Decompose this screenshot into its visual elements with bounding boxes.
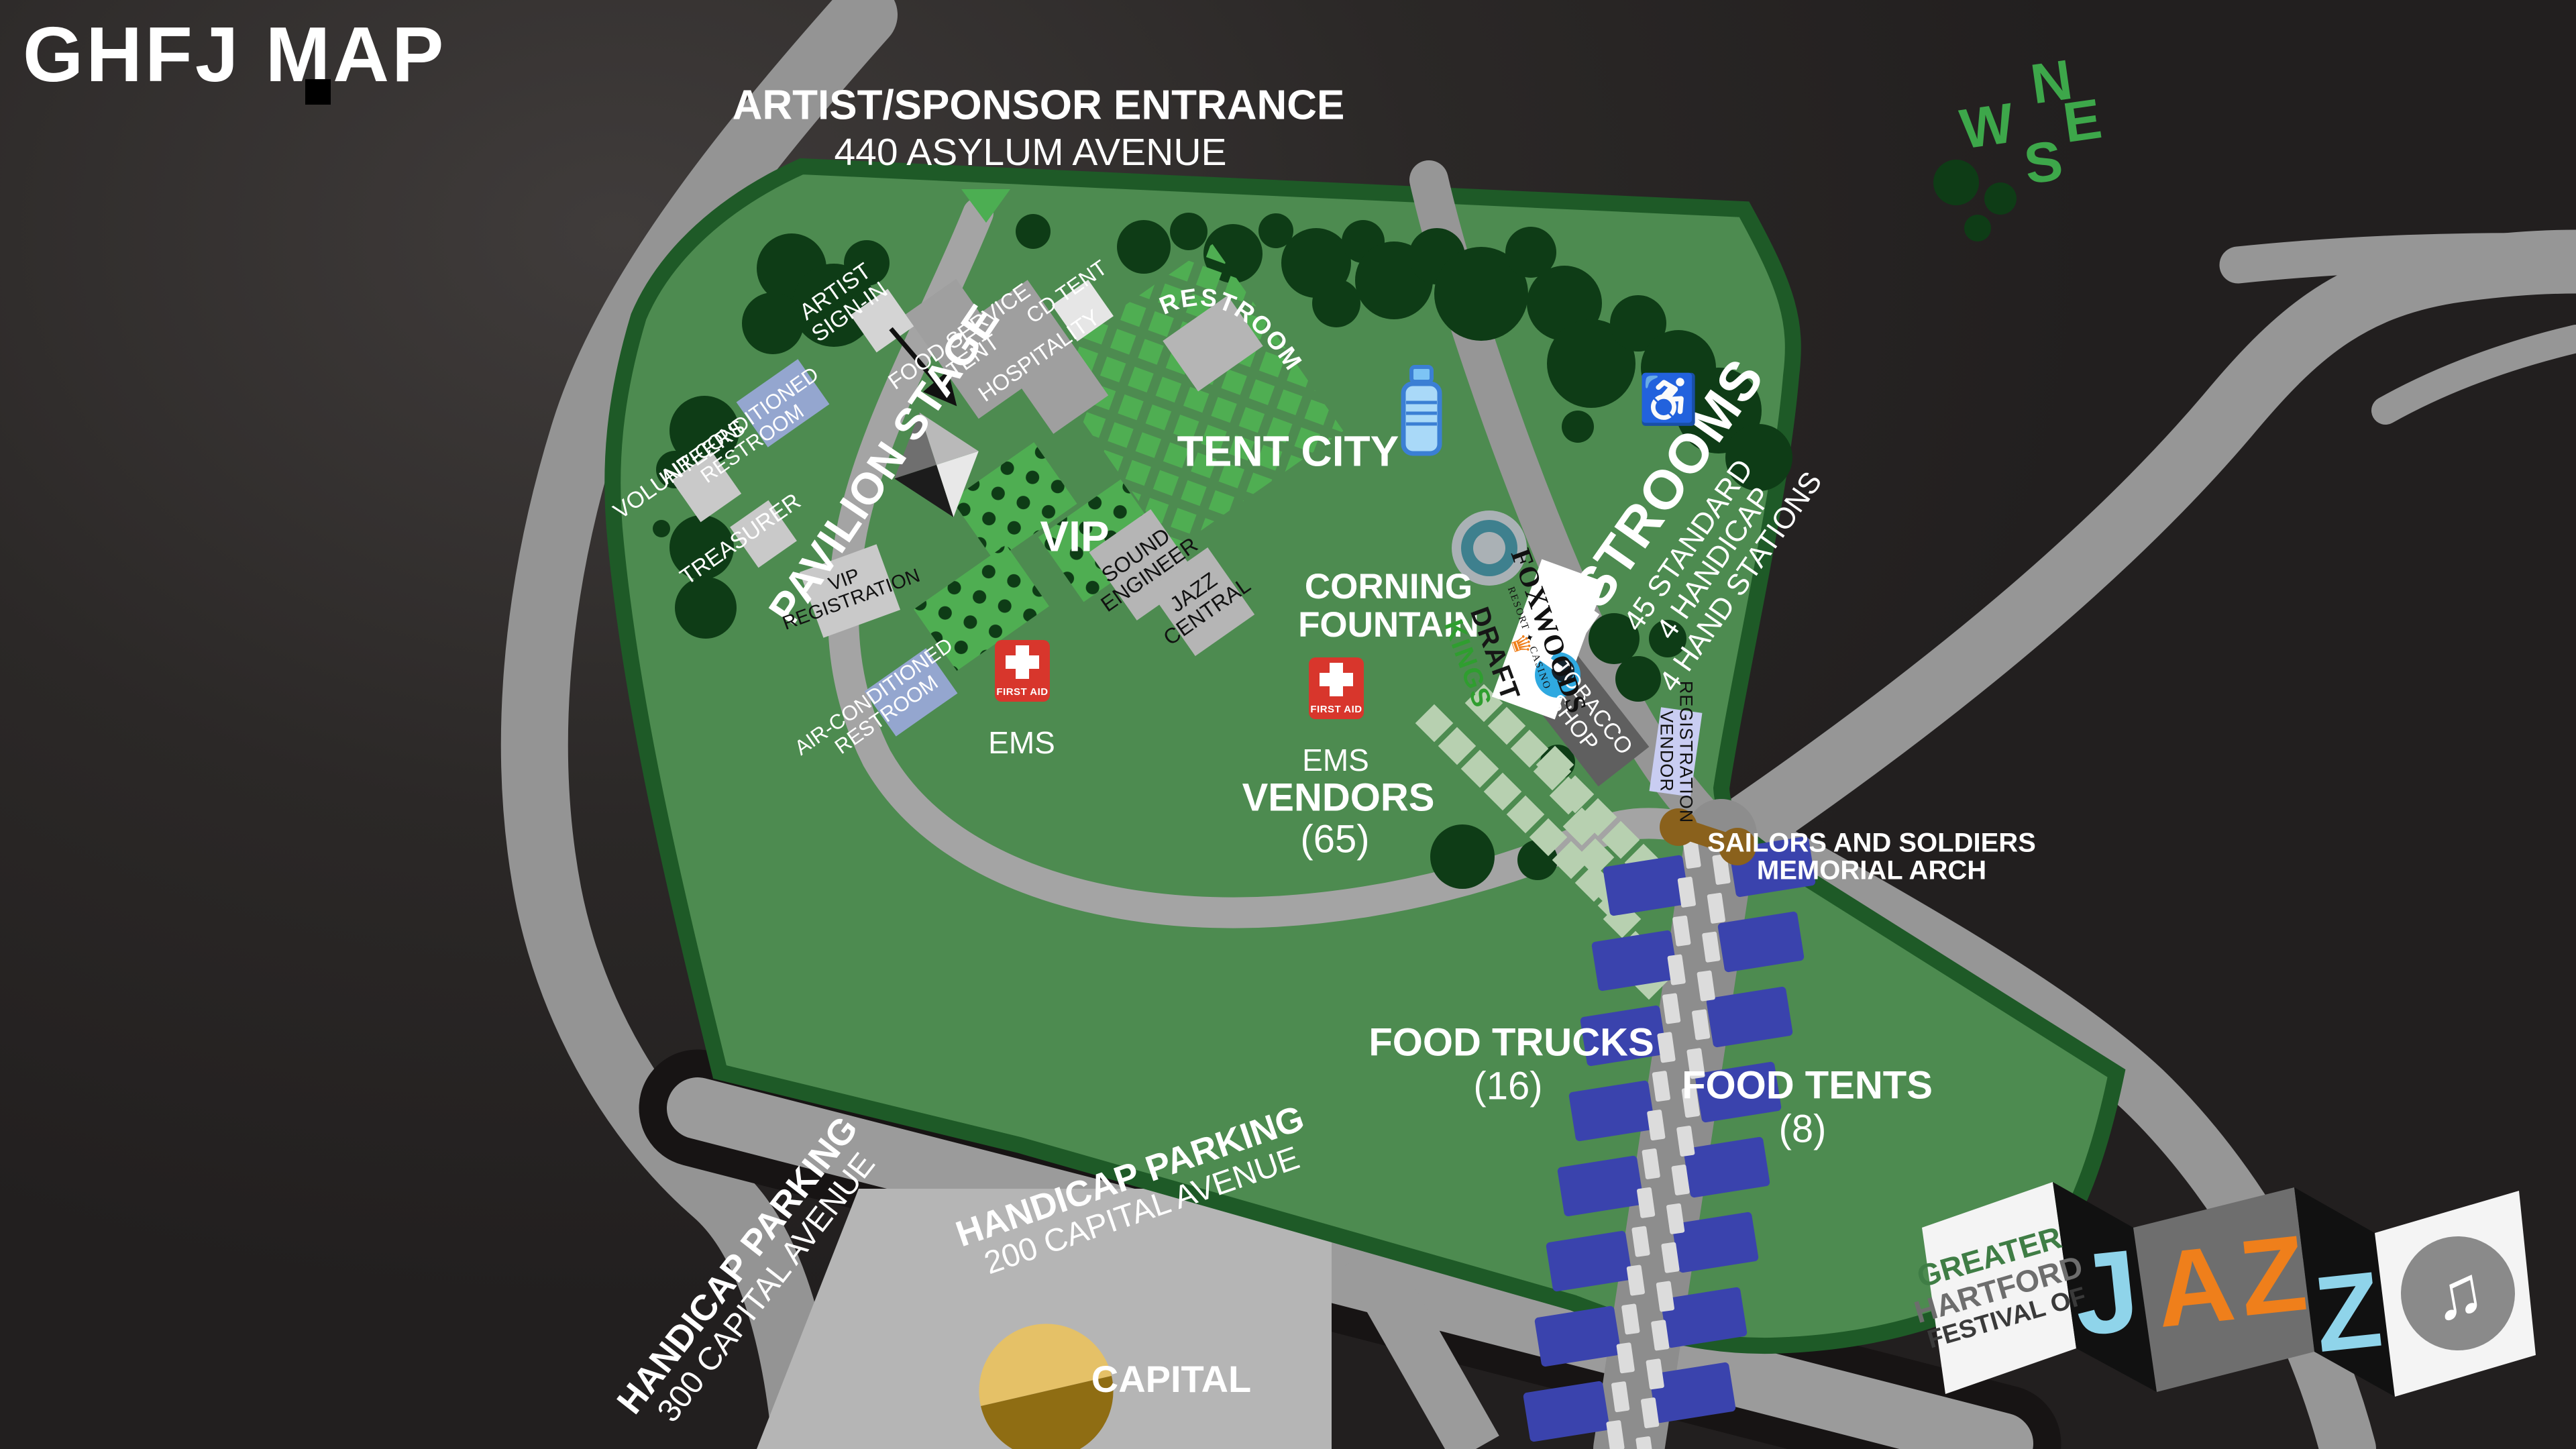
page-title: GHFJ MAP bbox=[23, 9, 446, 99]
tent-city-label: TENT CITY bbox=[1177, 428, 1399, 474]
vip-label: VIP bbox=[1040, 513, 1109, 559]
compass-east: E bbox=[2059, 88, 2105, 154]
compass-west: W bbox=[1956, 93, 2017, 160]
first-aid-station-2: FIRST AID bbox=[1309, 657, 1364, 719]
handicap-parking-200-label: HANDICAP PARKING 200 CAPITAL AVENUE bbox=[951, 1098, 1320, 1287]
ems-label-1: EMS bbox=[988, 727, 1055, 760]
black-marker-square bbox=[305, 79, 331, 105]
logo-wordmark: GREATER HARTFORD FESTIVAL OF bbox=[1902, 1218, 2094, 1356]
wheelchair-icon: ♿ bbox=[1638, 374, 1699, 427]
music-note-icon: ♫ bbox=[2392, 1228, 2524, 1360]
capital-label: CAPITAL bbox=[1091, 1359, 1252, 1399]
logo-letter-a: A bbox=[2151, 1225, 2240, 1348]
labels-layer: GHFJ MAP ARTIST/SPONSOR ENTRANCE 440 ASY… bbox=[0, 0, 2576, 1449]
vendor-registration-label-1: VENDOR bbox=[1656, 710, 1676, 792]
artist-sign-in-label: ARTISTSIGN-IN bbox=[793, 257, 892, 347]
memorial-arch-label-2: MEMORIAL ARCH bbox=[1757, 856, 1986, 885]
vendors-count: (65) bbox=[1300, 819, 1369, 861]
ac-restroom-2-label: AIR-CONDITIONEDRESTROOM bbox=[791, 634, 970, 778]
food-tents-count: (8) bbox=[1779, 1109, 1827, 1151]
entrance-label: ARTIST/SPONSOR ENTRANCE bbox=[733, 84, 1345, 129]
vendors-label: VENDORS bbox=[1242, 777, 1435, 820]
food-trucks-count: (16) bbox=[1473, 1066, 1542, 1108]
memorial-arch-label: SAILORS AND SOLDIERS bbox=[1707, 828, 2036, 857]
festival-map: RESTROOMS GHFJ MAP ARTIST/SPONSOR ENTRAN… bbox=[0, 0, 2576, 1449]
entrance-address: 440 ASYLUM AVENUE bbox=[834, 132, 1226, 174]
vendor-registration-label-2: REGISTRATION bbox=[1676, 681, 1695, 824]
ems-label-2: EMS bbox=[1302, 744, 1369, 777]
food-trucks-label: FOOD TRUCKS bbox=[1368, 1022, 1654, 1065]
first-aid-station-1: FIRST AID bbox=[995, 640, 1050, 702]
logo-letter-j: J bbox=[2068, 1228, 2145, 1359]
logo-letter-z2: Z bbox=[2309, 1251, 2386, 1373]
compass-south: S bbox=[2021, 129, 2066, 195]
handicap-parking-300-label: HANDICAP PARKING 300 CAPITAL AVENUE bbox=[610, 1110, 893, 1443]
ac-restroom-1-label: AIR-CONDITIONEDRESTROOM bbox=[657, 363, 836, 507]
food-tents-label: FOOD TENTS bbox=[1682, 1065, 1933, 1108]
logo-letter-z1: Z bbox=[2234, 1215, 2311, 1337]
